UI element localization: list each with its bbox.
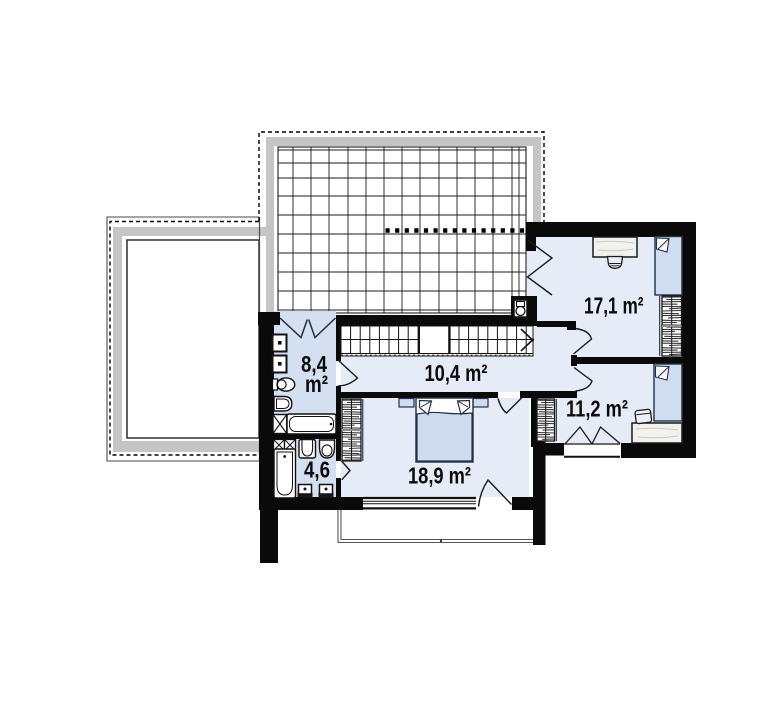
svg-text:17,1 m²: 17,1 m² (584, 292, 644, 318)
svg-text:11,2 m²: 11,2 m² (566, 396, 628, 422)
svg-text:18,9 m²: 18,9 m² (408, 463, 471, 489)
svg-text:4,6: 4,6 (304, 457, 330, 483)
svg-text:m²: m² (305, 371, 328, 397)
svg-text:10,4 m²: 10,4 m² (425, 360, 488, 386)
